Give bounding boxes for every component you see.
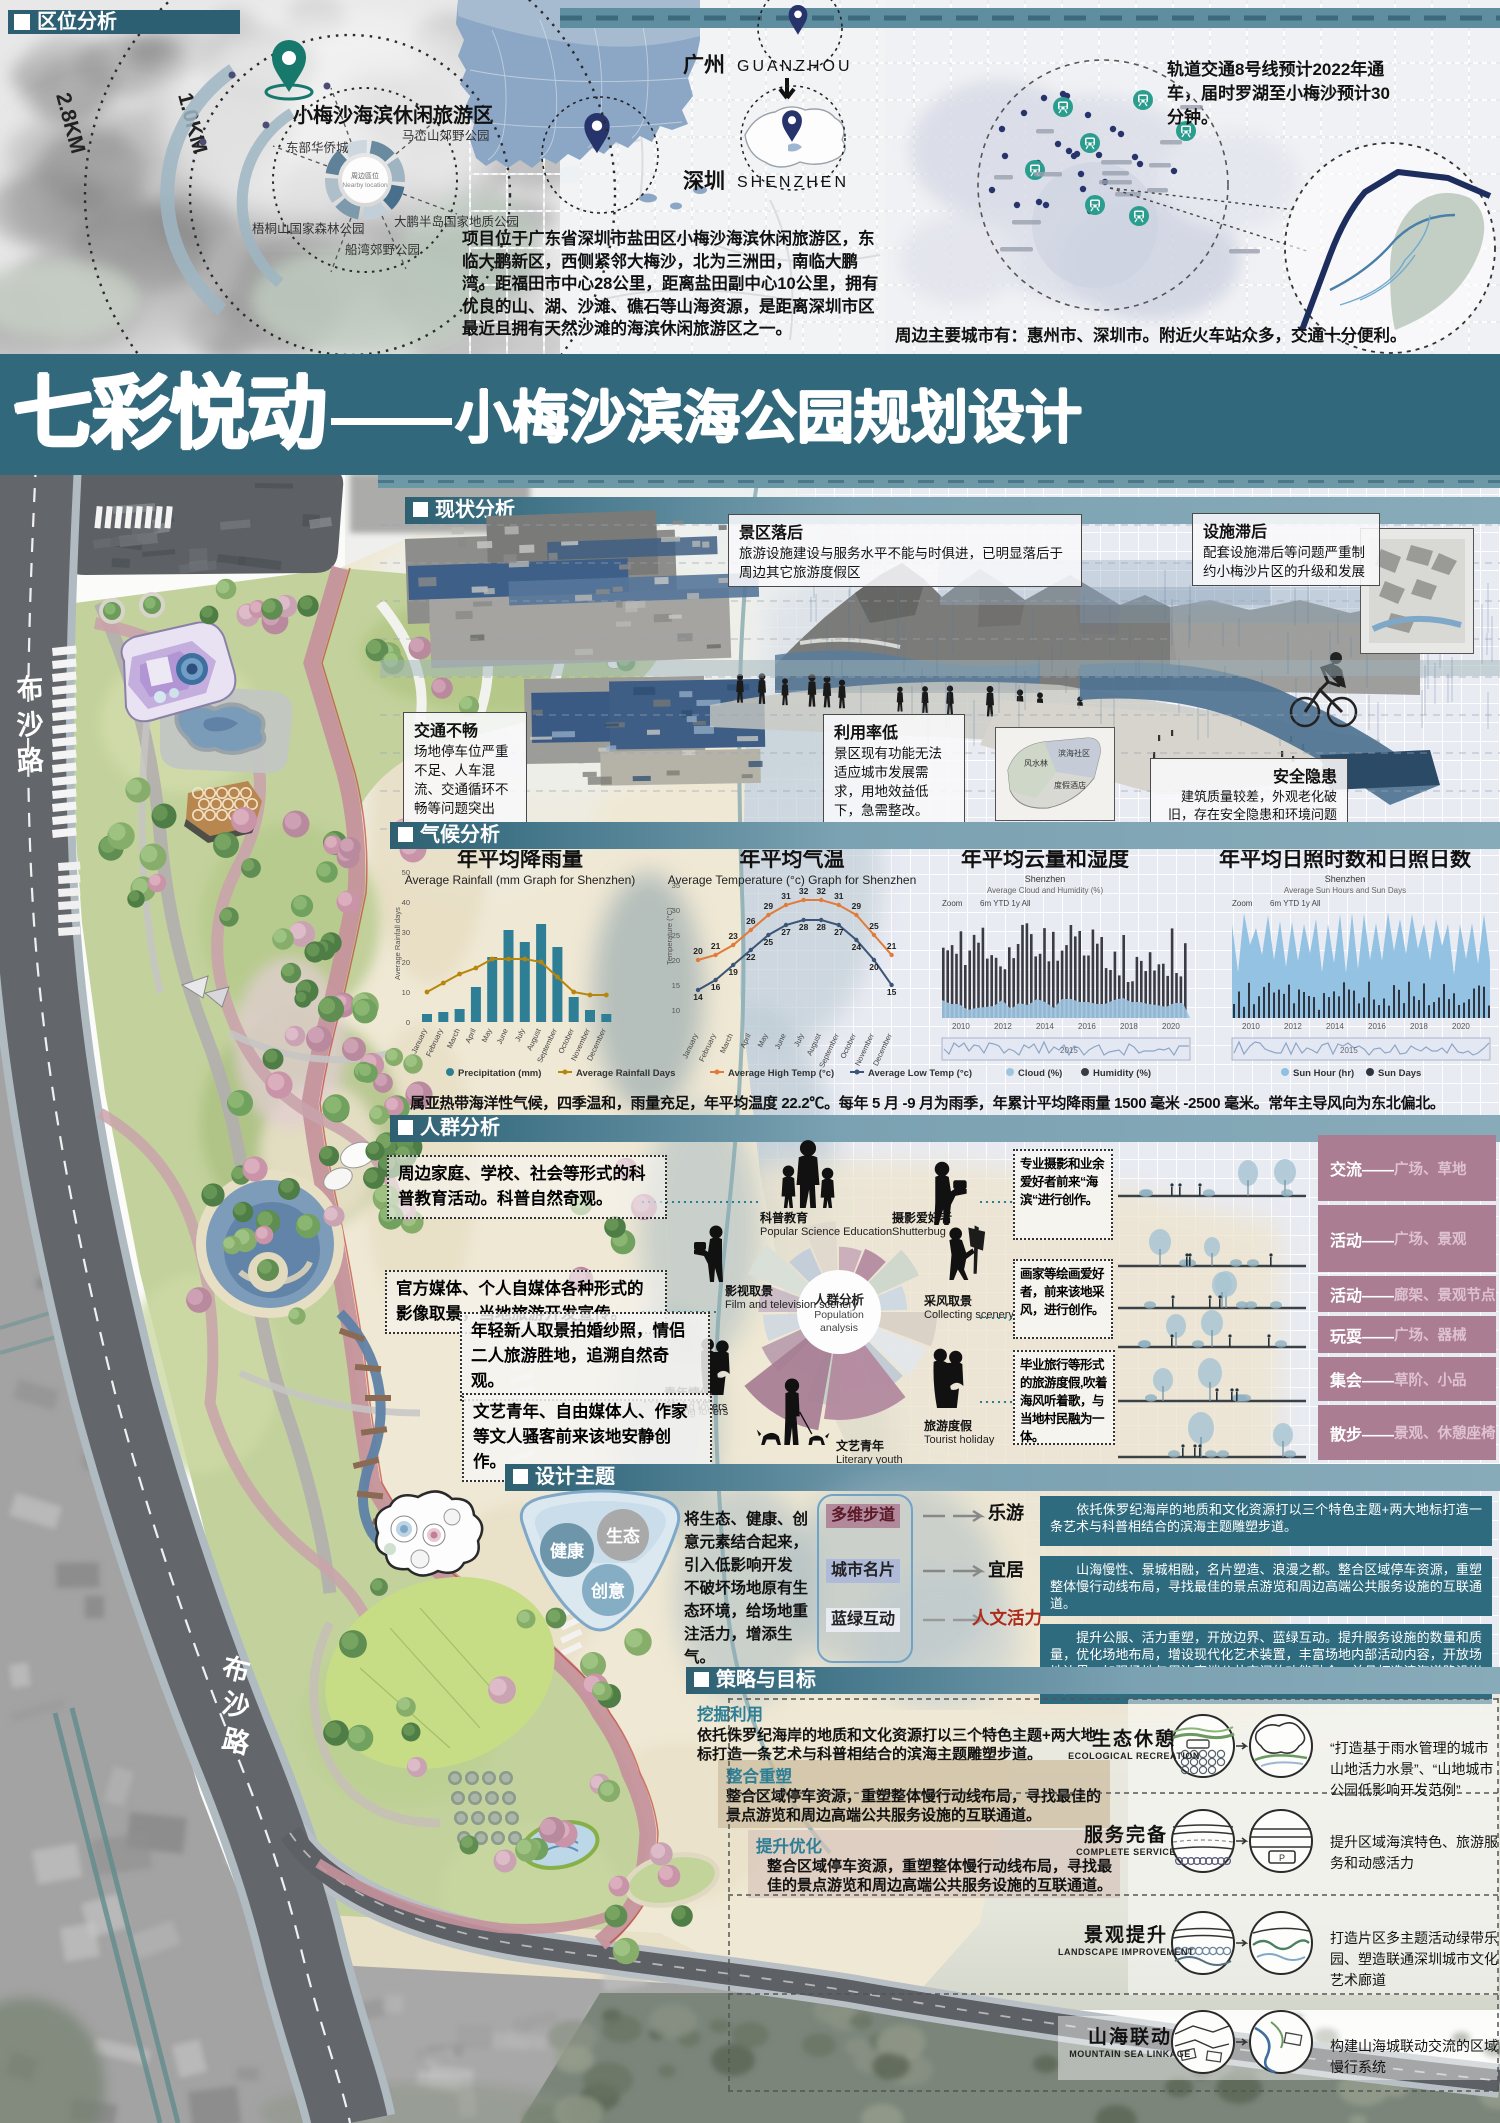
- svg-text:梧桐山国家森林公园: 梧桐山国家森林公园: [252, 221, 365, 236]
- svg-text:May: May: [756, 1032, 770, 1049]
- svg-text:20: 20: [693, 946, 703, 956]
- svg-text:15: 15: [887, 987, 897, 997]
- svg-text:摄影爱好者: 摄影爱好者: [892, 1210, 952, 1225]
- svg-text:Nearby location: Nearby location: [342, 182, 388, 189]
- svg-text:23: 23: [728, 931, 738, 941]
- svg-text:2020: 2020: [1162, 1022, 1180, 1031]
- svg-text:21: 21: [887, 941, 897, 951]
- svg-text:Tourist holiday: Tourist holiday: [924, 1434, 995, 1446]
- svg-text:2018: 2018: [1120, 1022, 1138, 1031]
- svg-text:July: July: [792, 1032, 806, 1048]
- svg-text:年平均气温: 年平均气温: [740, 850, 845, 871]
- svg-text:Shutterbug: Shutterbug: [892, 1226, 946, 1238]
- svg-text:October: October: [838, 1032, 858, 1060]
- svg-text:40: 40: [402, 898, 410, 907]
- svg-text:东部华侨城: 东部华侨城: [286, 140, 349, 155]
- svg-text:P: P: [1279, 1853, 1285, 1863]
- svg-text:Cloud (%): Cloud (%): [1018, 1068, 1062, 1079]
- svg-text:旅游度假: 旅游度假: [924, 1418, 973, 1433]
- svg-text:June: June: [773, 1032, 788, 1051]
- svg-text:大鹏半岛国家地质公园: 大鹏半岛国家地质公园: [394, 214, 519, 229]
- svg-text:30: 30: [402, 928, 410, 937]
- svg-text:2016: 2016: [1368, 1022, 1386, 1031]
- svg-text:28: 28: [816, 922, 826, 932]
- svg-text:25: 25: [869, 921, 879, 931]
- svg-text:analysis: analysis: [820, 1322, 858, 1334]
- svg-text:度假酒店: 度假酒店: [1054, 780, 1086, 790]
- svg-text:Average High Temp (°c): Average High Temp (°c): [728, 1068, 834, 1079]
- svg-text:布: 布: [16, 673, 45, 705]
- svg-text:2014: 2014: [1326, 1022, 1344, 1031]
- svg-text:March: March: [445, 1027, 462, 1050]
- svg-text:April: April: [463, 1027, 478, 1045]
- svg-text:Shenzhen: Shenzhen: [1325, 874, 1366, 884]
- svg-text:Average Rainfall (mm Graph for: Average Rainfall (mm Graph for Shenzhen): [405, 873, 636, 887]
- svg-text:2010: 2010: [1242, 1022, 1260, 1031]
- svg-text:32: 32: [799, 886, 809, 896]
- svg-text:22: 22: [746, 952, 756, 962]
- svg-text:31: 31: [781, 891, 791, 901]
- svg-text:32: 32: [816, 886, 826, 896]
- svg-text:19: 19: [728, 967, 738, 977]
- svg-text:April: April: [738, 1032, 753, 1050]
- svg-text:20: 20: [869, 962, 879, 972]
- svg-text:10: 10: [402, 988, 410, 997]
- svg-text:Collecting scenery: Collecting scenery: [924, 1309, 1014, 1321]
- svg-text:健康: 健康: [550, 1541, 585, 1561]
- svg-text:Film and television scenery: Film and television scenery: [725, 1299, 858, 1311]
- svg-text:26: 26: [746, 916, 756, 926]
- svg-text:Sun Days: Sun Days: [1378, 1068, 1421, 1079]
- svg-text:船湾郊野公园: 船湾郊野公园: [345, 242, 420, 257]
- svg-text:2015: 2015: [1060, 1046, 1078, 1055]
- svg-text:29: 29: [852, 901, 862, 911]
- svg-text:28: 28: [799, 922, 809, 932]
- svg-text:31: 31: [834, 891, 844, 901]
- svg-text:35: 35: [672, 881, 680, 890]
- svg-text:小梅沙海滨休闲旅游区: 小梅沙海滨休闲旅游区: [293, 103, 493, 127]
- svg-text:文艺青年: 文艺青年: [836, 1438, 884, 1453]
- svg-text:2012: 2012: [1284, 1022, 1302, 1031]
- svg-text:科普教育: 科普教育: [760, 1210, 808, 1225]
- svg-text:2016: 2016: [1078, 1022, 1096, 1031]
- svg-text:深圳: 深圳: [683, 170, 725, 193]
- svg-text:0: 0: [406, 1018, 410, 1027]
- svg-text:沙: 沙: [16, 709, 45, 741]
- svg-text:50: 50: [402, 868, 410, 877]
- svg-text:Popular Science Education: Popular Science Education: [760, 1226, 892, 1238]
- svg-text:年平均日照时数和日照日数: 年平均日照时数和日照日数: [1219, 850, 1472, 871]
- svg-text:滨海社区: 滨海社区: [1058, 748, 1090, 758]
- svg-text:August: August: [805, 1031, 823, 1057]
- svg-text:路: 路: [16, 744, 46, 777]
- svg-text:16: 16: [711, 982, 721, 992]
- svg-text:6m YTD 1y All: 6m YTD 1y All: [1270, 899, 1321, 908]
- svg-text:Temperature (°C): Temperature (°C): [665, 907, 674, 965]
- svg-text:May: May: [480, 1027, 494, 1044]
- svg-text:6m YTD 1y All: 6m YTD 1y All: [980, 899, 1031, 908]
- svg-text:Average Rainfall Days: Average Rainfall Days: [576, 1068, 675, 1079]
- svg-text:June: June: [495, 1027, 510, 1046]
- svg-text:24: 24: [852, 942, 862, 952]
- svg-text:27: 27: [834, 927, 844, 937]
- svg-text:2020: 2020: [1452, 1022, 1470, 1031]
- svg-text:Average Sun Hours and Sun Days: Average Sun Hours and Sun Days: [1284, 886, 1406, 895]
- svg-text:Average Low Temp (°c): Average Low Temp (°c): [868, 1068, 972, 1079]
- svg-text:2015: 2015: [1340, 1046, 1358, 1055]
- svg-text:July: July: [513, 1027, 527, 1043]
- svg-text:Shenzhen: Shenzhen: [1025, 874, 1066, 884]
- svg-text:10: 10: [672, 1006, 680, 1015]
- svg-text:GUANZHOU: GUANZHOU: [737, 58, 853, 75]
- svg-text:年平均降雨量: 年平均降雨量: [457, 850, 583, 871]
- svg-text:风水林: 风水林: [1024, 758, 1048, 768]
- svg-text:SHENZHEN: SHENZHEN: [737, 174, 849, 191]
- svg-text:Precipitation (mm): Precipitation (mm): [458, 1068, 541, 1079]
- svg-text:25: 25: [764, 937, 774, 947]
- svg-text:20: 20: [402, 958, 410, 967]
- svg-text:生态: 生态: [606, 1526, 640, 1546]
- svg-text:14: 14: [693, 992, 703, 1002]
- svg-text:29: 29: [764, 901, 774, 911]
- svg-text:影视取景: 影视取景: [725, 1283, 773, 1298]
- svg-text:Average Rainfall days: Average Rainfall days: [393, 907, 402, 980]
- svg-text:创意: 创意: [590, 1581, 625, 1601]
- svg-text:2018: 2018: [1410, 1022, 1428, 1031]
- svg-text:Average Cloud and Humidity (%): Average Cloud and Humidity (%): [987, 886, 1104, 895]
- svg-text:15: 15: [672, 981, 680, 990]
- svg-text:周边區位: 周边區位: [351, 171, 379, 180]
- svg-text:Average Temperature (°c) Graph: Average Temperature (°c) Graph for Shenz…: [668, 873, 917, 887]
- svg-text:马峦山郊野公园: 马峦山郊野公园: [402, 128, 490, 143]
- svg-text:21: 21: [711, 941, 721, 951]
- svg-text:2010: 2010: [952, 1022, 970, 1031]
- svg-text:Zoom: Zoom: [1232, 899, 1253, 908]
- svg-text:Humidity (%): Humidity (%): [1093, 1068, 1151, 1079]
- svg-text:Sun Hour (hr): Sun Hour (hr): [1293, 1068, 1354, 1079]
- svg-text:January: January: [680, 1032, 700, 1060]
- svg-text:2012: 2012: [994, 1022, 1012, 1031]
- svg-text:广州: 广州: [683, 53, 725, 77]
- svg-text:2014: 2014: [1036, 1022, 1054, 1031]
- svg-text:February: February: [697, 1032, 718, 1063]
- svg-text:27: 27: [781, 927, 791, 937]
- svg-text:年平均云量和湿度: 年平均云量和湿度: [961, 850, 1129, 871]
- svg-text:采风取景: 采风取景: [923, 1293, 972, 1308]
- svg-text:March: March: [718, 1032, 735, 1055]
- svg-text:Zoom: Zoom: [942, 899, 963, 908]
